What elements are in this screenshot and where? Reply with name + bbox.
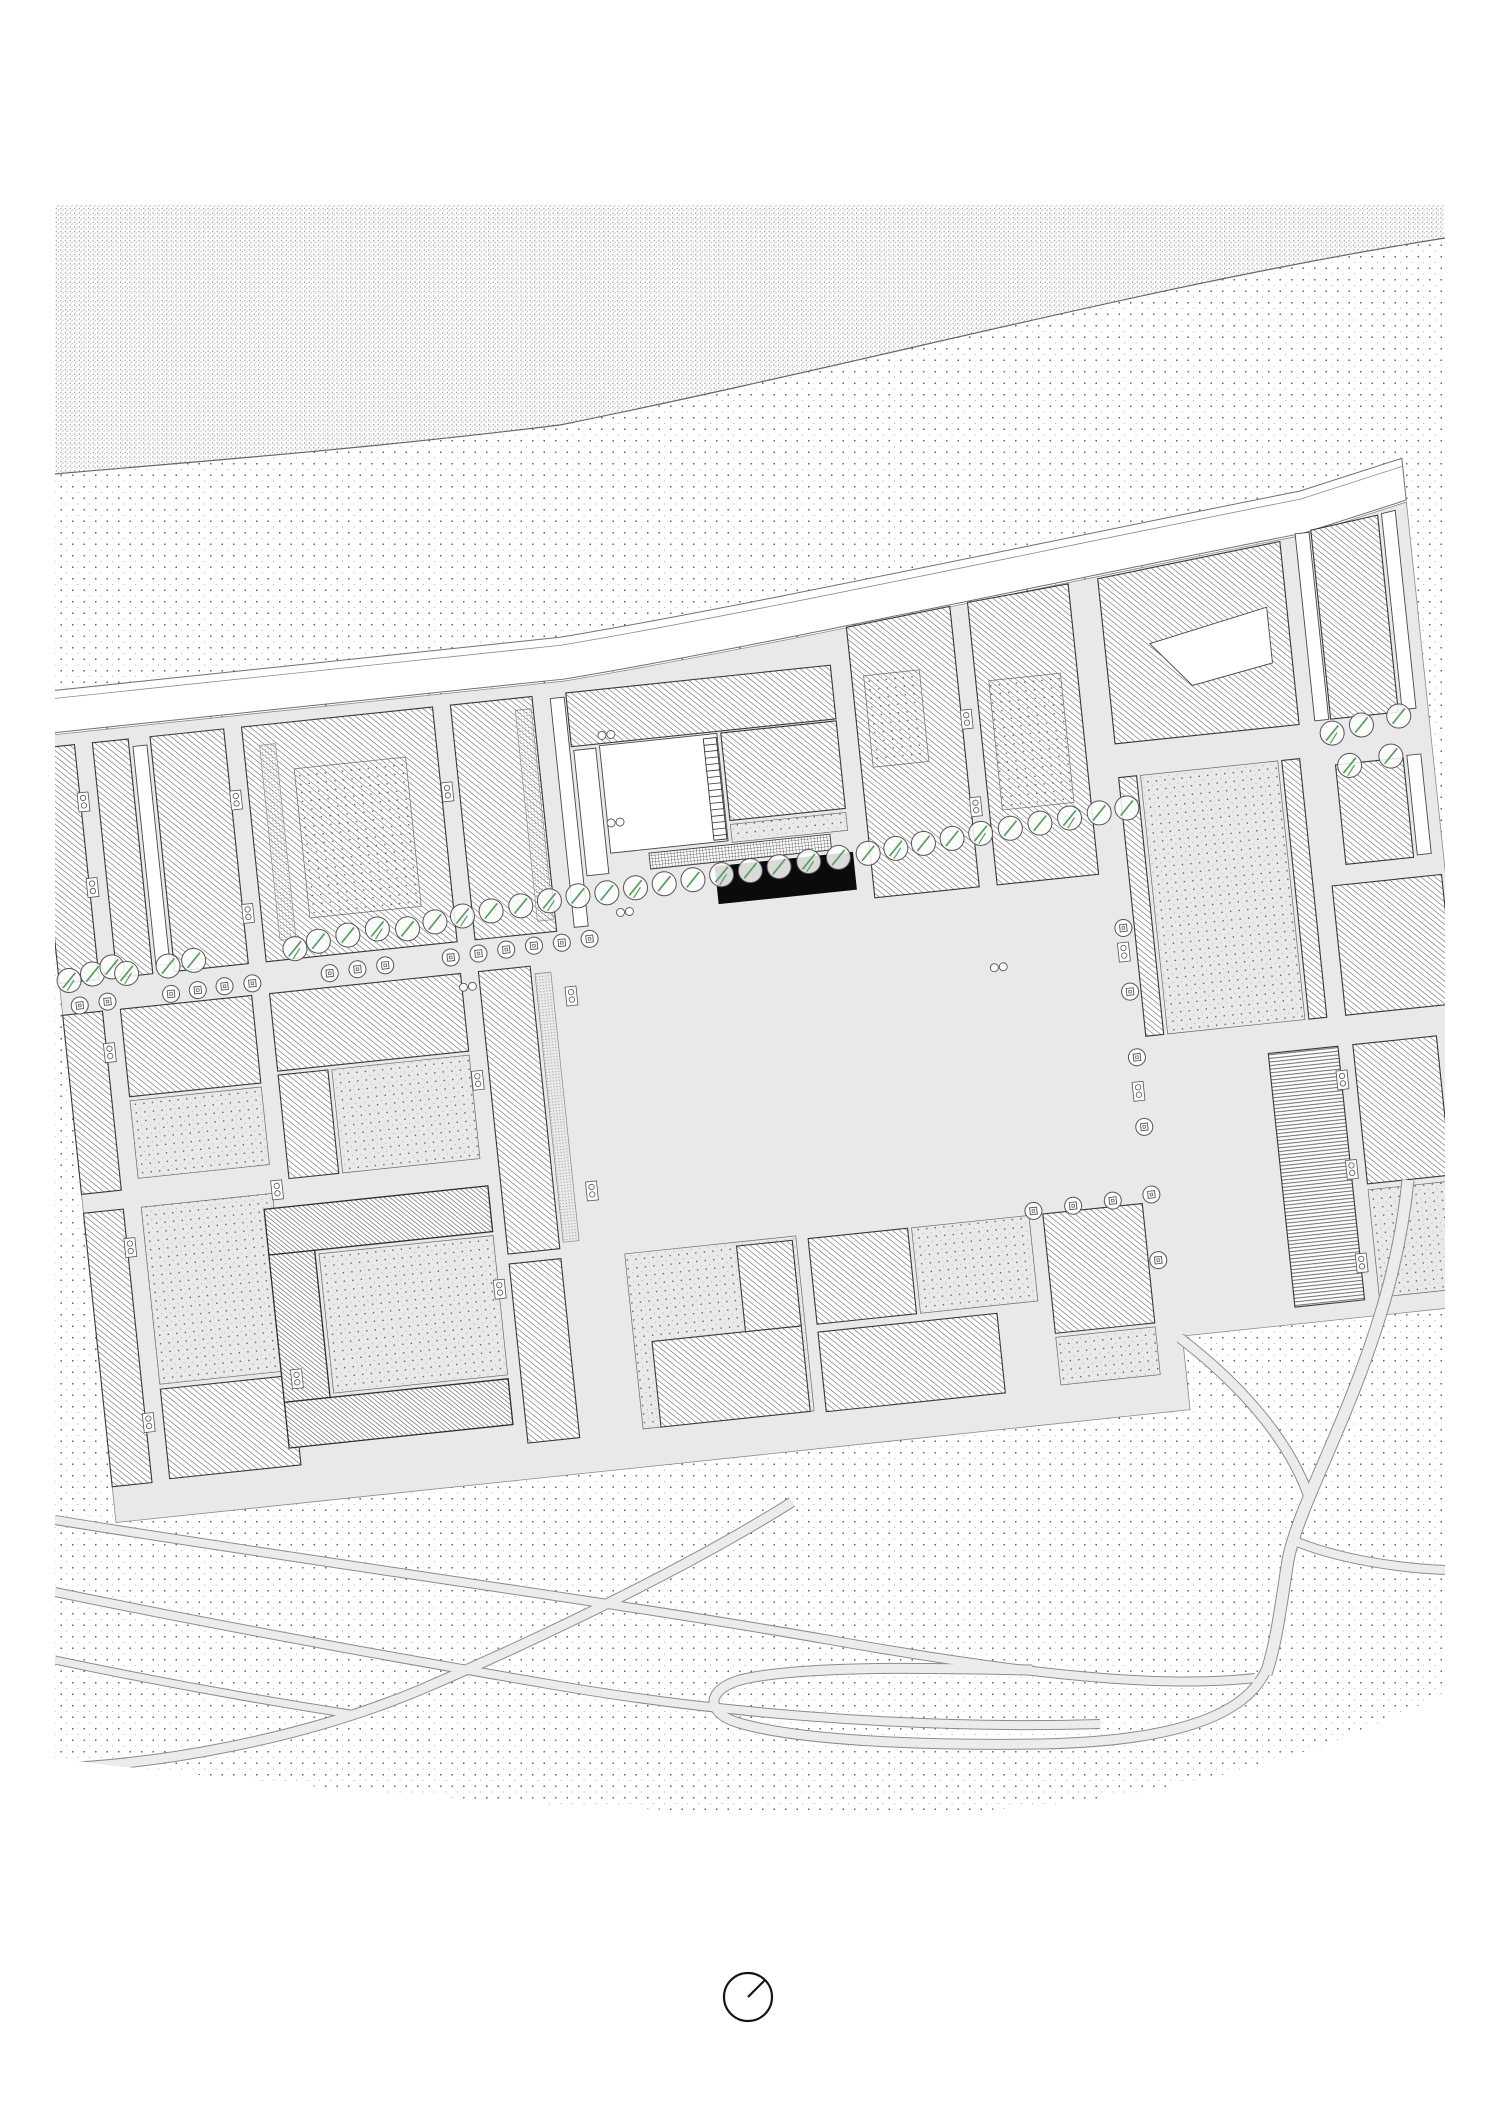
- block-slab-center-r3a: [652, 1326, 810, 1427]
- block-slab-center-r3c: [808, 1228, 916, 1324]
- block-block-col1-r2: [120, 995, 260, 1096]
- block-slab-col1-r3: [160, 1375, 301, 1478]
- lane-marker: [1336, 1070, 1349, 1090]
- lane-marker: [271, 1180, 284, 1200]
- block-court-r1-east2: [989, 673, 1074, 810]
- lane-marker: [86, 877, 99, 897]
- block-court-r1-east1: [864, 670, 929, 767]
- block-yard-e-plaza: [1141, 761, 1305, 1034]
- lane-marker: [471, 1070, 484, 1090]
- lane-marker: [1345, 1159, 1358, 1179]
- lane-marker: [242, 903, 255, 923]
- block-yard-se-r3: [1056, 1327, 1160, 1385]
- block-court-col2-r2: [332, 1055, 480, 1173]
- block-block-far-se: [1353, 1036, 1451, 1184]
- page: [0, 0, 1500, 2123]
- lane-marker: [441, 782, 454, 802]
- site-plan-svg: [0, 0, 1500, 2123]
- lane-marker: [1117, 942, 1130, 962]
- lane-marker: [585, 1181, 598, 1201]
- block-arm-col2-r2: [278, 1070, 339, 1179]
- plaza: [591, 877, 1142, 1252]
- lane-marker: [969, 797, 982, 817]
- block-cblock-court: [319, 1236, 508, 1394]
- lane-marker: [493, 1279, 506, 1299]
- block-yard-col1-r2: [130, 1087, 269, 1178]
- lane-marker: [1132, 1081, 1145, 1101]
- lane-marker: [291, 1369, 304, 1389]
- block-block-se-r3: [1043, 1204, 1155, 1334]
- site-plan: [0, 0, 1500, 2123]
- block-slab-center-r3b: [737, 1240, 802, 1331]
- lane-marker: [960, 709, 973, 729]
- lane-marker: [124, 1238, 137, 1258]
- lane-marker: [230, 790, 243, 810]
- block-yard-center-r3b: [912, 1215, 1038, 1313]
- lane-marker: [103, 1043, 116, 1063]
- lane-marker: [142, 1413, 155, 1433]
- lane-marker: [1355, 1253, 1368, 1273]
- block-block-ne-r2: [1332, 874, 1455, 1015]
- block-site-east-arm: [721, 721, 846, 821]
- lane-marker: [77, 792, 90, 812]
- block-court-col2-r1: [294, 757, 421, 918]
- lane-marker: [565, 986, 578, 1006]
